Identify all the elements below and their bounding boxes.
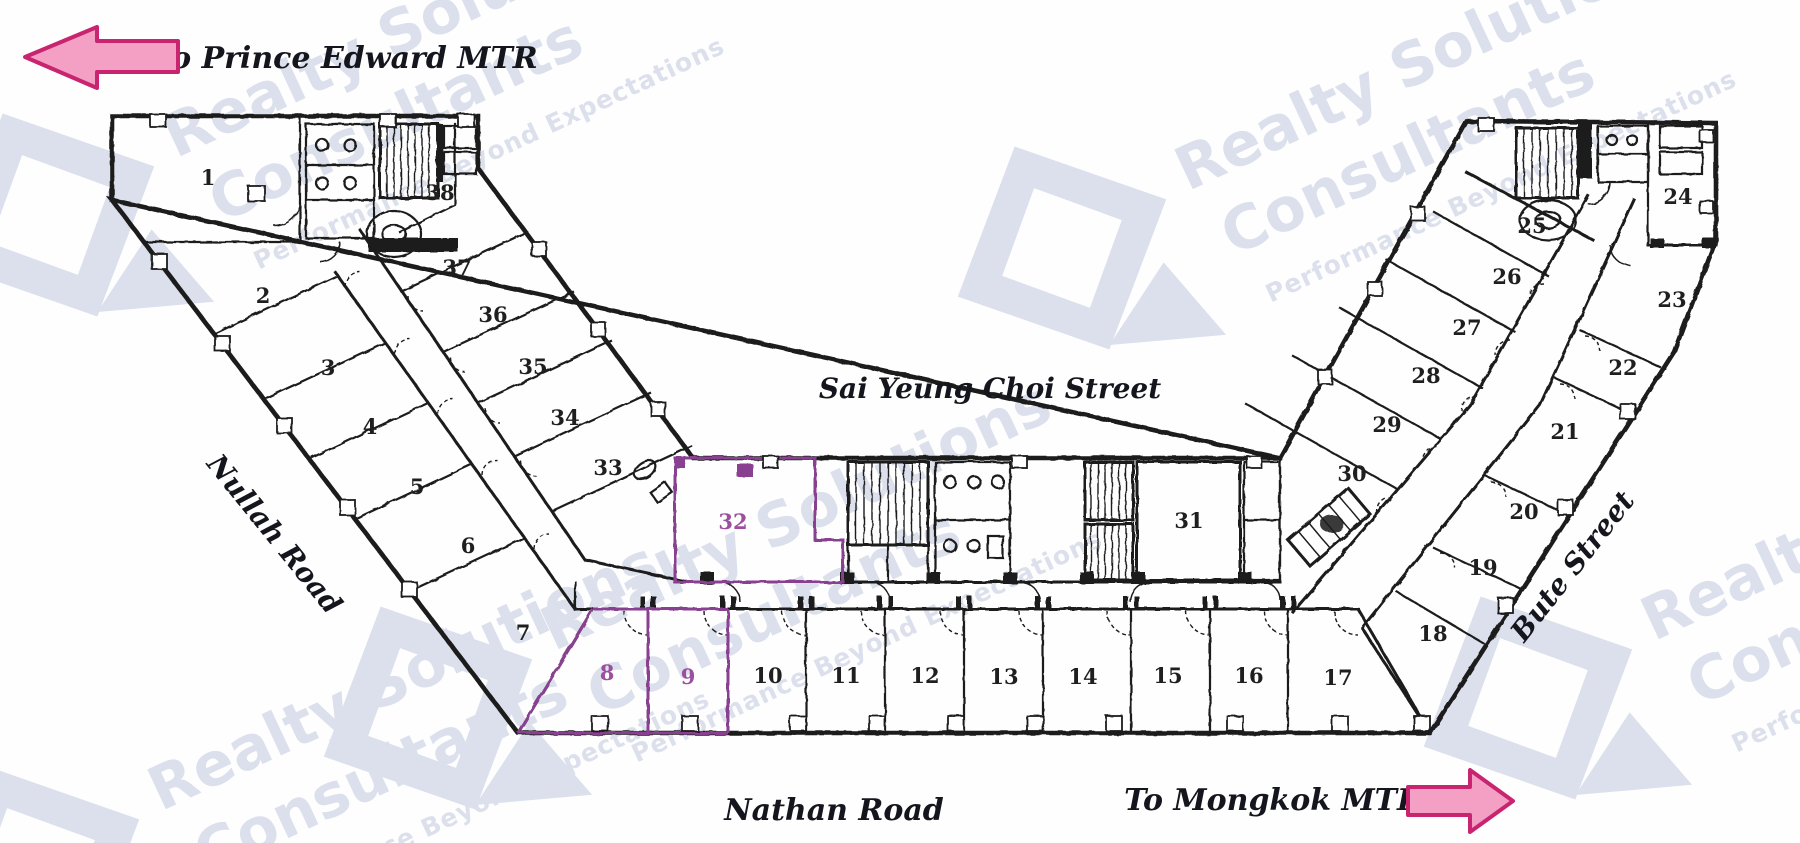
unit-label-30: 30 — [1337, 461, 1366, 486]
unit-label-11: 11 — [831, 663, 860, 688]
unit-label-22: 22 — [1608, 355, 1637, 380]
unit-label-24: 24 — [1663, 184, 1692, 209]
unit-label-26: 26 — [1492, 264, 1521, 289]
unit-label-10: 10 — [753, 663, 782, 688]
unit-label-3: 3 — [321, 355, 336, 380]
unit-label-31: 31 — [1174, 508, 1203, 533]
unit-label-29: 29 — [1372, 412, 1401, 437]
arrow-right-icon — [1408, 770, 1513, 832]
unit-label-33: 33 — [593, 455, 622, 480]
unit-label-12: 12 — [910, 663, 939, 688]
unit-label-13: 13 — [989, 664, 1018, 689]
unit-label-20: 20 — [1509, 499, 1538, 524]
unit-label-14: 14 — [1068, 664, 1097, 689]
unit-label-4: 4 — [363, 414, 378, 439]
floor-plan-page: Realty Solutions Consultants Performance… — [0, 0, 1800, 843]
unit-label-36: 36 — [478, 302, 507, 327]
watermark-layer — [0, 0, 1800, 843]
unit-label-5: 5 — [410, 474, 425, 499]
unit-label-8: 8 — [600, 660, 615, 685]
label-to-mongkok: To Mongkok MTR — [1124, 783, 1422, 818]
unit-label-18: 18 — [1418, 621, 1447, 646]
label-to-prince-edward: To Prince Edward MTR — [152, 41, 538, 76]
unit-label-2: 2 — [256, 283, 271, 308]
label-nathan-road: Nathan Road — [723, 793, 944, 828]
floor-plan-canvas: Realty Solutions Consultants Performance… — [0, 0, 1800, 843]
unit-label-1: 1 — [201, 165, 216, 190]
unit-label-38: 38 — [425, 180, 454, 205]
unit-label-27: 27 — [1452, 315, 1481, 340]
label-nullah-road: Nullah Road — [200, 447, 349, 620]
label-sai-yeung-choi: Sai Yeung Choi Street — [819, 372, 1161, 405]
unit-label-23: 23 — [1657, 287, 1686, 312]
unit-label-15: 15 — [1153, 663, 1182, 688]
unit-label-17: 17 — [1323, 665, 1352, 690]
unit-label-7: 7 — [516, 620, 531, 645]
unit-label-32: 32 — [718, 509, 747, 534]
unit-label-9: 9 — [681, 664, 696, 689]
unit-label-21: 21 — [1550, 419, 1579, 444]
unit-label-19: 19 — [1468, 555, 1497, 580]
unit-label-16: 16 — [1234, 663, 1263, 688]
unit-label-25: 25 — [1517, 213, 1546, 238]
unit-label-6: 6 — [461, 533, 476, 558]
unit-label-37: 37 — [442, 255, 471, 280]
unit-label-35: 35 — [518, 354, 547, 379]
unit-label-28: 28 — [1411, 363, 1440, 388]
arrow-left-icon — [25, 27, 178, 88]
unit-label-34: 34 — [550, 405, 579, 430]
